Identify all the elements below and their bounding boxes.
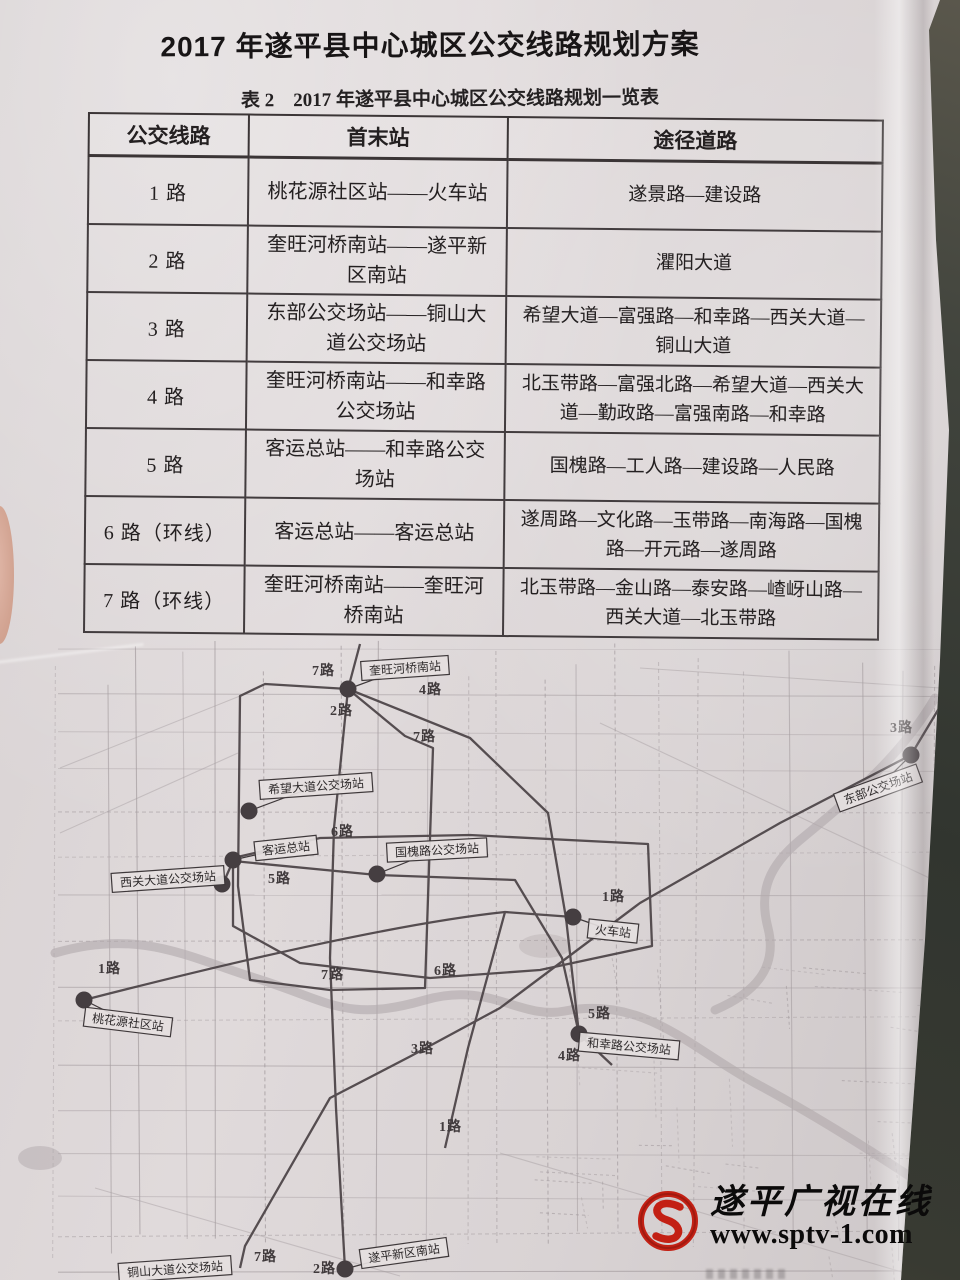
- river: [18, 698, 935, 1193]
- route-terminals: 东部公交场站——铜山大道公交场站: [246, 294, 506, 364]
- bus-route-table: 公交线路 首末站 途径道路 1 路 桃花源社区站——火车站 遂景路—建设路 2 …: [83, 112, 884, 641]
- station-dot: [340, 681, 357, 698]
- table-row: 1 路 桃花源社区站——火车站 遂景路—建设路: [88, 156, 883, 232]
- route-roads: 遂景路—建设路: [507, 160, 883, 232]
- route-roads: 灈阳大道: [506, 228, 882, 300]
- route-terminals: 奎旺河桥南站——遂平新区南站: [247, 226, 507, 296]
- sptv-logo-icon: [634, 1184, 702, 1256]
- station-dot: [337, 1261, 354, 1278]
- route-number-label: 1路: [439, 1118, 462, 1135]
- route-number-label: 7路: [254, 1248, 277, 1265]
- table-row: 4 路 奎旺河桥南站——和幸路公交场站 北玉带路—富强北路—希望大道—西关大道—…: [86, 360, 881, 436]
- route-number-label: 6路: [434, 962, 457, 979]
- table-caption: 表 2 2017 年遂平县中心城区公交线路规划一览表: [120, 82, 780, 114]
- route-number-label: 5路: [268, 870, 291, 887]
- watermark-text: 遂平广视在线 www.sptv-1.com: [710, 1184, 932, 1249]
- route-terminals: 桃花源社区站——火车站: [248, 157, 508, 228]
- route-number: 7 路（环线）: [84, 564, 244, 634]
- bus-route-lines: [84, 644, 950, 1269]
- station-dot: [225, 852, 242, 869]
- route-number-label: 4路: [558, 1047, 581, 1064]
- table-row: 2 路 奎旺河桥南站——遂平新区南站 灈阳大道: [87, 224, 882, 300]
- station-label: 遂平新区南站: [359, 1237, 448, 1268]
- illegible-caption-fragment: [706, 1269, 786, 1279]
- station-label: 桃花源社区站: [83, 1007, 172, 1037]
- route-number-label: 1路: [98, 960, 121, 977]
- table-row: 5 路 客运总站——和幸路公交场站 国槐路—工人路—建设路—人民路: [85, 428, 880, 504]
- route-roads: 北玉带路—富强北路—希望大道—西关大道—勤政路—富强南路—和幸路: [505, 364, 881, 436]
- station-dot: [369, 866, 386, 883]
- route-number-label: 7路: [321, 966, 344, 983]
- route-number-label: 7路: [312, 662, 335, 679]
- route-roads: 遂周路—文化路—玉带路—南海路—国槐路—开元路—遂周路: [504, 500, 880, 572]
- watermark-url: www.sptv-1.com: [710, 1221, 932, 1249]
- station-dot: [241, 803, 258, 820]
- station-label: 奎旺河桥南站: [361, 655, 450, 680]
- route-number: 3 路: [87, 292, 247, 362]
- route-number-label: 7路: [413, 728, 436, 745]
- route-number-label: 3路: [411, 1040, 434, 1057]
- station-label: 和幸路公交场站: [578, 1032, 679, 1060]
- route-terminals: 奎旺河桥南站——和幸路公交场站: [246, 362, 506, 432]
- route-roads: 国槐路—工人路—建设路—人民路: [504, 432, 880, 504]
- route-number: 6 路（环线）: [85, 496, 245, 566]
- route-number-label: 3路: [890, 719, 913, 736]
- route-number-label: 5路: [588, 1005, 611, 1022]
- route-number-label: 4路: [419, 681, 442, 698]
- photo-of-document: 2017 年遂平县中心城区公交线路规划方案 表 2 2017 年遂平县中心城区公…: [0, 0, 960, 1280]
- page-title: 2017 年遂平县中心城区公交线路规划方案: [60, 22, 800, 66]
- col-header-route: 公交线路: [89, 113, 249, 157]
- station-label: 客运总站: [254, 835, 318, 860]
- paper-sheet: 2017 年遂平县中心城区公交线路规划方案 表 2 2017 年遂平县中心城区公…: [0, 0, 960, 1280]
- route-number-label: 6路: [331, 823, 354, 840]
- watermark-name: 遂平广视在线: [710, 1184, 932, 1221]
- station-dot: [565, 909, 582, 926]
- col-header-roads: 途径道路: [508, 117, 883, 163]
- route-number-label: 2路: [313, 1260, 336, 1277]
- route-roads: 希望大道—富强路—和幸路—西关大道—铜山大道: [506, 296, 882, 368]
- col-header-terminals: 首末站: [248, 115, 508, 160]
- route-number-label: 2路: [330, 702, 353, 719]
- watermark: 遂平广视在线 www.sptv-1.com: [634, 1184, 932, 1256]
- route-terminals: 奎旺河桥南站——奎旺河桥南站: [244, 566, 504, 636]
- table-header-row: 公交线路 首末站 途径道路: [89, 113, 883, 163]
- station-label: 火车站: [587, 919, 639, 943]
- route-number: 1 路: [88, 156, 248, 226]
- station-dot: [76, 992, 93, 1009]
- table-row: 3 路 东部公交场站——铜山大道公交场站 希望大道—富强路—和幸路—西关大道—铜…: [87, 292, 882, 368]
- route-terminals: 客运总站——和幸路公交场站: [245, 430, 505, 500]
- route-number-label: 1路: [602, 888, 625, 905]
- station-label: 西关大道公交场站: [111, 866, 225, 893]
- table-row: 6 路（环线） 客运总站——客运总站 遂周路—文化路—玉带路—南海路—国槐路—开…: [85, 496, 880, 572]
- route-number: 2 路: [87, 224, 247, 294]
- route-number: 5 路: [85, 428, 245, 498]
- station-label: 铜山大道公交场站: [118, 1256, 232, 1280]
- route-number: 4 路: [86, 360, 246, 430]
- station-dot: [903, 747, 920, 764]
- station-label: 国槐路公交场站: [386, 838, 487, 862]
- station-label: 希望大道公交场站: [259, 773, 373, 800]
- route-terminals: 客运总站——客运总站: [244, 498, 504, 568]
